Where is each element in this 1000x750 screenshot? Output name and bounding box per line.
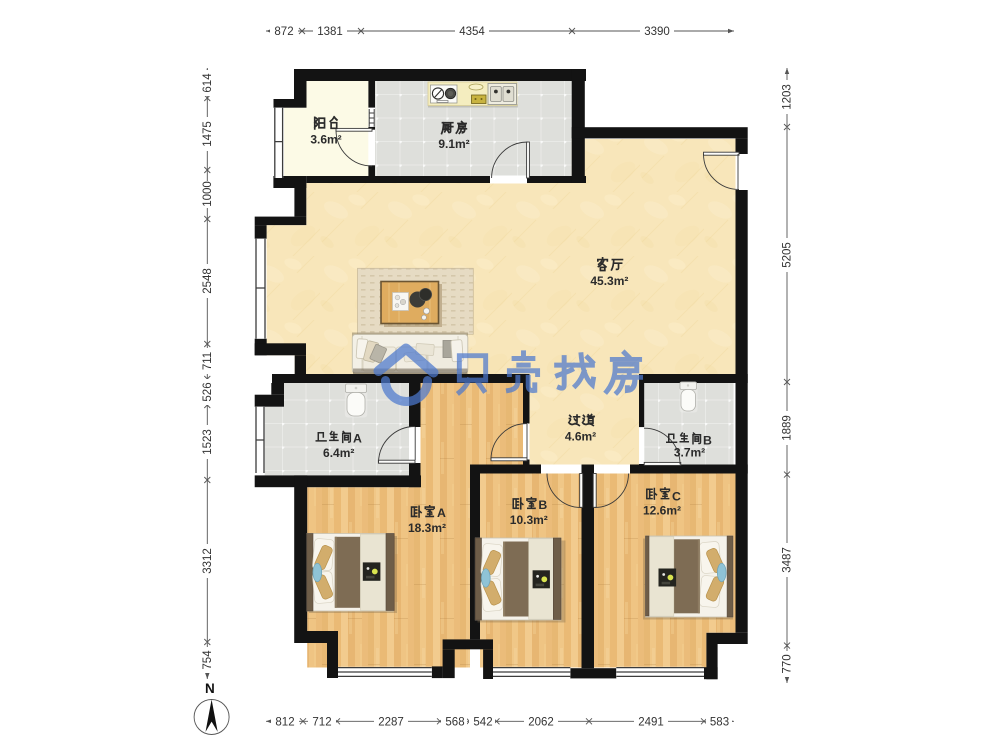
- svg-text:5205: 5205: [782, 242, 794, 268]
- svg-text:1203: 1203: [782, 84, 794, 110]
- svg-text:872: 872: [274, 26, 293, 38]
- svg-text:712: 712: [312, 716, 331, 728]
- svg-text:3390: 3390: [644, 26, 670, 38]
- svg-text:1381: 1381: [317, 26, 343, 38]
- svg-text:754: 754: [202, 650, 214, 670]
- svg-text:12.6m²: 12.6m²: [643, 503, 681, 517]
- svg-text:A: A: [437, 506, 446, 520]
- svg-text:6.4m²: 6.4m²: [323, 446, 354, 460]
- svg-text:526: 526: [202, 382, 214, 401]
- svg-text:4354: 4354: [459, 26, 485, 38]
- svg-text:A: A: [353, 432, 362, 446]
- svg-text:614: 614: [202, 73, 214, 93]
- svg-text:C: C: [672, 489, 681, 503]
- svg-text:10.3m²: 10.3m²: [510, 513, 548, 527]
- svg-text:770: 770: [782, 654, 794, 673]
- svg-text:B: B: [538, 498, 547, 512]
- svg-text:3.7m²: 3.7m²: [674, 446, 705, 460]
- svg-text:1475: 1475: [202, 121, 214, 147]
- svg-text:3312: 3312: [202, 548, 214, 574]
- svg-text:2062: 2062: [528, 716, 554, 728]
- svg-text:542: 542: [473, 716, 492, 728]
- svg-text:9.1m²: 9.1m²: [438, 137, 469, 151]
- svg-text:812: 812: [275, 716, 294, 728]
- svg-text:N: N: [205, 681, 215, 696]
- svg-text:3.6m²: 3.6m²: [310, 133, 341, 147]
- svg-text:2548: 2548: [202, 268, 214, 294]
- svg-text:1523: 1523: [202, 429, 214, 455]
- svg-text:2287: 2287: [378, 716, 404, 728]
- svg-text:18.3m²: 18.3m²: [408, 521, 446, 535]
- svg-text:711: 711: [202, 352, 214, 370]
- svg-text:4.6m²: 4.6m²: [565, 429, 596, 443]
- svg-text:1889: 1889: [782, 415, 794, 441]
- svg-text:583: 583: [710, 716, 729, 728]
- svg-text:2491: 2491: [638, 716, 664, 728]
- svg-text:3487: 3487: [782, 547, 794, 573]
- svg-text:1000: 1000: [202, 181, 214, 207]
- svg-text:568: 568: [445, 716, 464, 728]
- svg-text:45.3m²: 45.3m²: [590, 274, 628, 288]
